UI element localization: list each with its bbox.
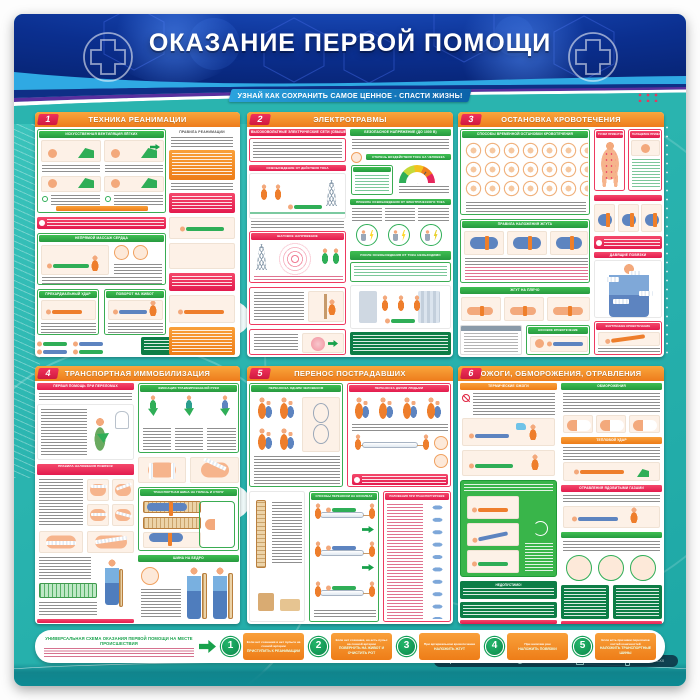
stretcher xyxy=(362,442,418,448)
torso-bandage xyxy=(87,479,109,501)
decor xyxy=(362,564,374,571)
bandaged-person-illustration xyxy=(594,260,662,318)
decor: ТОЧКИ ПРИЖАТИЯ АРТЕРИЙ xyxy=(598,133,623,136)
bandaged-limb xyxy=(563,415,593,433)
illustration xyxy=(41,140,101,162)
section-heat-stroke: ТЕПЛОВОЙ УДАР xyxy=(561,437,662,444)
arm-wash-circle xyxy=(598,555,624,581)
decor: При наличии ран xyxy=(510,642,565,646)
decor xyxy=(326,506,356,513)
ladder xyxy=(256,500,266,568)
decor xyxy=(46,541,76,545)
decor xyxy=(361,230,366,241)
text-lines xyxy=(141,589,181,619)
caption-lines xyxy=(352,424,448,432)
decor xyxy=(467,307,493,315)
panel-resuscitation: 1 ТЕХНИКА РЕАНИМАЦИИ ИСКУССТВЕННАЯ ВЕНТИ… xyxy=(35,112,240,357)
bearer xyxy=(366,581,376,599)
knee-press xyxy=(594,204,615,232)
section-arm-fixation: ФИКСАЦИЯ ТРАВМИРОВАННОЙ РУКИ xyxy=(138,383,239,453)
decor xyxy=(425,230,430,241)
arrow-right-icon xyxy=(199,640,216,653)
orange-note-box xyxy=(169,150,235,180)
decor xyxy=(353,167,391,172)
red-dots-decor xyxy=(636,92,660,102)
panel-3-header: 3 ОСТАНОВКА КРОВОТЕЧЕНИЯ xyxy=(458,112,664,127)
decor xyxy=(56,206,148,211)
decor: ПРАВИЛА НАЛОЖЕНИЯ ПОВЯЗОК xyxy=(58,464,113,468)
bandaged-limb xyxy=(629,415,660,433)
illustration xyxy=(631,140,660,156)
step-number: 5 xyxy=(573,637,592,656)
panel-title: ОСТАНОВКА КРОВОТЕЧЕНИЯ xyxy=(458,112,664,127)
text-lines xyxy=(314,610,376,619)
current-gauge xyxy=(399,165,435,183)
decor: ПРАВИЛА ОСВОБОЖДЕНИЯ ОТ ЭЛЕКТРИЧЕСКОГО Т… xyxy=(356,200,445,204)
splint-bar xyxy=(228,573,233,619)
section-tourniquet: ПРАВИЛА НАЛОЖЕНИЯ ЖГУТА xyxy=(460,219,590,283)
decor xyxy=(353,335,448,352)
heart-illustration xyxy=(302,333,344,353)
splinted-figure xyxy=(213,567,227,619)
summary-box xyxy=(350,332,451,355)
decor: ПРЕКАРДИАЛЬНЫЙ УДАР xyxy=(39,291,97,298)
text-lines xyxy=(598,348,660,354)
illustration xyxy=(467,523,519,546)
leg-tourniquet xyxy=(464,231,504,255)
decor xyxy=(633,420,657,431)
cpr-illustration xyxy=(563,506,660,528)
text-box xyxy=(249,138,346,162)
decor xyxy=(472,560,508,567)
text-lines xyxy=(114,195,163,205)
text-lines xyxy=(473,393,555,415)
arm-illustration xyxy=(504,297,544,321)
text-lines xyxy=(563,393,660,413)
bullet-list xyxy=(632,159,660,188)
decor xyxy=(369,230,374,241)
scheme-step-3: 3 При артериальном кровотеченииНАЛОЖИТЬ … xyxy=(397,633,480,660)
forbidden-box xyxy=(613,585,662,619)
decor xyxy=(425,397,443,421)
decor: СПОСОБЫ ПЕРЕНОСКИ НА НОСИЛКАХ xyxy=(316,495,373,498)
decor xyxy=(105,196,111,202)
decor xyxy=(464,484,553,492)
decor xyxy=(46,308,82,315)
bent-leg-splint xyxy=(143,532,201,548)
decor xyxy=(278,428,296,452)
splint-bar xyxy=(202,573,207,619)
section-high-voltage: ВЫСОКОВОЛЬТНЫЕ ЭЛЕКТРИЧЕСКИЕ СЕТИ (СВЫШЕ… xyxy=(249,129,346,136)
decor xyxy=(604,239,660,247)
decor: ПОСЛЕ ОСВОБОЖДЕНИЯ ОТ ТОКА НЕОБХОДИМО xyxy=(360,253,440,257)
decor xyxy=(327,299,337,315)
decor xyxy=(597,141,623,187)
text-lines xyxy=(465,258,588,265)
panel-title: ЭЛЕКТРОТРАВМЫ xyxy=(247,112,453,127)
panel-5-body: ПЕРЕНОСКА ОДНИМ ЧЕЛОВЕКОМ ПЕРЕНОСКА ДВУМ… xyxy=(247,381,453,624)
panel-number-badge: 6 xyxy=(460,368,482,379)
torso-bandage xyxy=(87,531,134,553)
decor: ЖГУТ НА ПЛЕЧО xyxy=(510,288,539,292)
decor xyxy=(605,277,619,282)
decor xyxy=(73,348,103,355)
decor xyxy=(141,148,157,158)
decor xyxy=(354,266,447,278)
illustration xyxy=(169,295,235,323)
warning-bar xyxy=(352,474,448,485)
forbidden-box: НЕДОПУСТИМО! xyxy=(460,581,557,599)
decor xyxy=(385,317,415,324)
alert-icon xyxy=(596,240,602,246)
decor xyxy=(143,517,201,529)
section-pressure-bandage: ДАВЯЩИЕ ПОВЯЗКИ xyxy=(594,252,662,258)
section-two-person-carry: ПЕРЕНОСКА ДВУМЯ ЛЮДЬМИ xyxy=(347,383,451,487)
section-ventilation: ИСКУССТВЕННАЯ ВЕНТИЛЯЦИЯ ЛЁГКИХ xyxy=(37,129,166,213)
timing-table xyxy=(460,325,522,355)
decor xyxy=(377,397,395,421)
text-lines xyxy=(254,292,304,322)
decor: ПЕРЕНОСКА ДВУМЯ ЛЮДЬМИ xyxy=(375,386,424,390)
checklist xyxy=(350,262,451,282)
recovery-position-figures xyxy=(37,339,137,356)
decor xyxy=(645,214,659,226)
decor: НЕПРЯМОЙ МАССАЖ СЕРДЦА xyxy=(39,235,164,242)
text-lines xyxy=(51,195,100,205)
figures xyxy=(319,248,341,270)
decor: ТРАНСПОРТНАЯ ШИНА НА ГОЛЕНЬ И СТОПУ xyxy=(140,489,237,496)
detail-inset xyxy=(434,436,448,450)
decor: ВЫСОКОВОЛЬТНЫЕ ЭЛЕКТРИЧЕСКИЕ СЕТИ (СВЫШЕ… xyxy=(251,130,346,134)
foot-bandage-inset xyxy=(199,501,235,548)
decor xyxy=(313,424,329,444)
text-lines xyxy=(41,409,87,455)
decor: НЕДОПУСТИМО! xyxy=(460,583,557,587)
heart-check-box xyxy=(249,329,346,355)
decor xyxy=(172,153,232,177)
prohibition-icon xyxy=(462,394,470,402)
decor: НЕПРЯМОЙ МАССАЖ СЕРДЦА xyxy=(75,236,128,240)
decor: ШИНА НА БЕДРО xyxy=(173,556,204,560)
decor xyxy=(205,519,229,530)
decor xyxy=(564,588,606,616)
decor xyxy=(629,507,639,523)
bearer xyxy=(312,541,322,559)
arm-wash-circle xyxy=(630,555,656,581)
decor xyxy=(513,237,541,249)
decor: При наличии ранНАЛОЖИТЬ ПОВЯЗКИ xyxy=(507,633,568,660)
section-safe-voltage: БЕЗОПАСНОЕ НАПРЯЖЕНИЕ (ДО 1000 В) xyxy=(350,129,451,136)
panel-number-badge: 5 xyxy=(249,368,271,379)
section-burns: ТЕРМИЧЕСКИЕ ОЖОГИ xyxy=(460,383,557,390)
text-lines xyxy=(254,334,298,352)
decor xyxy=(148,300,158,316)
decor xyxy=(639,291,653,296)
improvised-stretcher-box xyxy=(249,491,305,622)
decor xyxy=(115,411,129,429)
decor xyxy=(401,230,406,241)
decor xyxy=(42,196,48,202)
scheme-step-2: 2 Если нет сознания, но есть пульс на со… xyxy=(309,633,392,660)
scheme-step-5: 5 Если есть признаки переломов костей ко… xyxy=(573,633,656,660)
section-internal-bleeding: ВНУТРЕННЕЕ КРОВОТЕЧЕНИЕ xyxy=(594,321,662,355)
decor xyxy=(464,333,518,353)
text-lines xyxy=(42,277,162,284)
decor: При артериальном кровотечении xyxy=(422,642,477,646)
decor xyxy=(47,262,89,269)
decor xyxy=(472,506,508,513)
panel-1-header: 1 ТЕХНИКА РЕАНИМАЦИИ xyxy=(35,112,240,127)
first-aid-poster: ОКАЗАНИЕ ПЕРВОЙ ПОМОЩИ УЗНАЙ КАК СОХРАНИ… xyxy=(14,14,686,686)
arm-wash-circle xyxy=(566,555,592,581)
decor xyxy=(359,291,377,323)
forbidden-box xyxy=(561,585,609,619)
decor: ПРЕКАРДИАЛЬНЫЙ УДАР xyxy=(45,292,91,296)
section-leg-splint: ТРАНСПОРТНАЯ ШИНА НА ГОЛЕНЬ И СТОПУ xyxy=(138,487,239,551)
electricians-illustration xyxy=(350,285,451,329)
decor xyxy=(91,485,107,488)
decor: ПЕРЕНОСКА ДВУМЯ ЛЮДЬМИ xyxy=(349,385,449,392)
red-note-box xyxy=(169,193,235,213)
section-poisoning: ОТРАВЛЕНИЯ ЯДОВИТЫМИ ГАЗАМИ xyxy=(561,485,662,492)
decor: Если есть признаки переломов костей коне… xyxy=(595,633,656,660)
decor xyxy=(328,340,338,347)
cpr-illustration xyxy=(41,245,109,275)
decor xyxy=(147,503,187,511)
decor xyxy=(362,476,446,484)
decor: ПРАВИЛА НАЛОЖЕНИЯ ЖГУТА xyxy=(498,222,552,226)
decor xyxy=(73,340,103,347)
decor xyxy=(629,271,641,275)
decor xyxy=(528,424,538,440)
illustration xyxy=(467,496,519,519)
panel-2-body: ВЫСОКОВОЛЬТНЫЕ ЭЛЕКТРИЧЕСКИЕ СЕТИ (СВЫШЕ… xyxy=(247,127,453,357)
text-lines xyxy=(39,479,83,527)
text-lines xyxy=(114,264,162,275)
chair xyxy=(258,593,274,611)
torso-bandage xyxy=(112,479,134,501)
scheme-step-1: 1 Если нет сознания и нет пульса на сонн… xyxy=(221,633,304,660)
panel-immobilization: 4 ТРАНСПОРТНАЯ ИММОБИЛИЗАЦИЯ ПЕРВАЯ ПОМО… xyxy=(35,366,240,624)
subtitle-ribbon: УЗНАЙ КАК СОХРАНИТЬ САМОЕ ЦЕННОЕ - СПАСТ… xyxy=(228,89,471,102)
caption-lines xyxy=(254,456,340,484)
decor: ТЕРМИЧЕСКИЕ ОЖОГИ xyxy=(488,384,529,388)
panel-title: ТЕХНИКА РЕАНИМАЦИИ xyxy=(35,112,240,127)
panel-6-body: ТЕРМИЧЕСКИЕ ОЖОГИ НЕДОПУСТИМО! xyxy=(458,381,664,624)
decor xyxy=(311,337,325,351)
panel-3-body: СПОСОБЫ ВРЕМЕННОЙ ОСТАНОВКИ КРОВОТЕЧЕНИЯ… xyxy=(458,127,664,357)
illustration xyxy=(104,176,164,192)
decor xyxy=(78,178,94,188)
red-bar xyxy=(460,620,557,624)
section-temporary-stop: СПОСОБЫ ВРЕМЕННОЙ ОСТАНОВКИ КРОВОТЕЧЕНИЯ xyxy=(460,129,590,215)
panel-burns-frostbite-poisoning: 6 ОЖОГИ, ОБМОРОЖЕНИЯ, ОТРАВЛЕНИЯ ТЕРМИЧЕ… xyxy=(458,366,664,624)
decor xyxy=(149,463,153,479)
section-bandage-rules: ПРАВИЛА НАЛОЖЕНИЯ ПОВЯЗОК xyxy=(37,464,134,475)
panel-title: ТРАНСПОРТНАЯ ИММОБИЛИЗАЦИЯ xyxy=(35,366,240,381)
torso-bandage xyxy=(112,504,134,526)
knee-press xyxy=(641,204,662,232)
decor: ИСКУССТВЕННАЯ ВЕНТИЛЯЦИЯ ЛЁГКИХ xyxy=(39,131,164,138)
step-number: 3 xyxy=(397,637,416,656)
decor xyxy=(535,339,544,348)
decor xyxy=(613,299,629,304)
decor xyxy=(111,179,120,188)
torso-bandage xyxy=(87,504,109,526)
text-lines xyxy=(418,208,449,221)
decor xyxy=(353,397,371,421)
decor: Если нет сознания, но есть пульс на сонн… xyxy=(334,638,389,646)
warning-bar xyxy=(594,236,662,249)
illustration xyxy=(467,550,519,573)
decor xyxy=(149,533,183,542)
decor xyxy=(141,178,157,188)
scheme-step-4: 4 При наличии ранНАЛОЖИТЬ ПОВЯЗКИ xyxy=(485,633,568,660)
decor: ПЕРЕНОСКА ОДНИМ ЧЕЛОВЕКОМ xyxy=(269,386,324,390)
decor: ПОЛОЖЕНИЯ ПРИ ТРАНСПОРТИРОВКЕ xyxy=(385,493,449,500)
scheme-intro: УНИВЕРСАЛЬНАЯ СХЕМА ОКАЗАНИЯ ПЕРВОЙ ПОМО… xyxy=(44,636,194,657)
universal-scheme-bar: УНИВЕРСАЛЬНАЯ СХЕМА ОКАЗАНИЯ ПЕРВОЙ ПОМО… xyxy=(35,630,665,663)
decor xyxy=(641,144,650,153)
bandaged-limb xyxy=(596,415,626,433)
panel-number-badge: 2 xyxy=(249,114,271,125)
panel-number-badge: 1 xyxy=(37,114,59,125)
decor xyxy=(622,214,636,226)
panel-4-body: ПЕРВАЯ ПОМОЩЬ ПРИ ПЕРЕЛОМАХ ПРАВИЛА НАЛО… xyxy=(35,381,240,624)
illustration xyxy=(41,176,101,192)
decor xyxy=(616,588,659,616)
ladder-splint xyxy=(39,583,97,598)
decor xyxy=(313,403,329,423)
bearer xyxy=(312,503,322,521)
decor xyxy=(393,230,398,241)
decor: Если нет сознания, но есть пульс на сонн… xyxy=(331,633,392,660)
decor xyxy=(48,149,57,158)
water-vessel xyxy=(516,423,526,430)
decor xyxy=(362,526,374,533)
decor xyxy=(37,340,67,347)
text-lines xyxy=(466,202,586,212)
decor xyxy=(530,454,540,470)
decor xyxy=(172,276,232,288)
rotate-arrow-icon xyxy=(533,521,548,536)
decor: ФИКСАЦИЯ ТРАВМИРОВАННОЙ РУКИ xyxy=(140,385,237,392)
text-lines xyxy=(171,137,233,148)
section-transport-positions: ПОЛОЖЕНИЯ ПРИ ТРАНСПОРТИРОВКЕ xyxy=(383,491,451,622)
decor xyxy=(463,605,554,615)
decor: НАЛОЖИТЬ ПОВЯЗКИ xyxy=(510,647,565,651)
splint-bar xyxy=(119,569,123,607)
decor xyxy=(556,237,582,249)
detail-inset xyxy=(141,567,159,585)
text-lines xyxy=(525,543,553,571)
decor xyxy=(172,196,232,210)
panel-bleeding-control: 3 ОСТАНОВКА КРОВОТЕЧЕНИЯ СПОСОБЫ ВРЕМЕНН… xyxy=(458,112,664,357)
decor xyxy=(417,172,427,184)
stretcher-position-diagrams xyxy=(426,504,449,619)
cooling-illustration xyxy=(462,418,555,446)
red-note-box xyxy=(169,273,235,291)
decor: Если есть признаки переломов костей коне… xyxy=(598,638,653,646)
decor: СПОСОБЫ ВРЕМЕННОЙ ОСТАНОВКИ КРОВОТЕЧЕНИЯ xyxy=(462,131,588,138)
decor: СПОСОБЫ ПЕРЕНОСКИ НА НОСИЛКАХ xyxy=(311,493,377,500)
panel-6-header: 6 ОЖОГИ, ОБМОРОЖЕНИЯ, ОТРАВЛЕНИЯ xyxy=(458,366,664,381)
section-release: ОСВОБОЖДЕНИЕ ОТ ДЕЙСТВИЯ ТОКА xyxy=(249,165,346,171)
illustration xyxy=(308,291,344,322)
decor xyxy=(553,307,583,315)
text-lines xyxy=(171,183,233,191)
decor: ПОВОРОТ НА ЖИВОТ xyxy=(106,291,164,298)
gauge-legend xyxy=(399,186,449,195)
decor: ПЕРВАЯ ПОМОЩЬ ПРИ ПЕРЕЛОМАХ xyxy=(53,384,118,388)
section-arm-tourniquet: ЖГУТ НА ПЛЕЧО xyxy=(460,287,590,294)
text-lines xyxy=(563,541,660,552)
bearer xyxy=(420,434,432,456)
text-lines xyxy=(272,502,302,564)
hazard-circle xyxy=(420,224,442,246)
section-finger-pressure: ПАЛЬЦЕВОЕ ПРИЖАТИЕ АРТЕРИЙ xyxy=(628,129,662,191)
decor xyxy=(111,149,120,158)
decor: НАЛОЖИТЬ ЖГУТ xyxy=(422,647,477,651)
text-lines xyxy=(39,393,132,402)
decor: ТРАНСПОРТНАЯ ШИНА НА ГОЛЕНЬ И СТОПУ xyxy=(153,490,223,494)
step-number: 2 xyxy=(309,637,328,656)
text-lines xyxy=(563,447,660,460)
panel-electrical-injuries: 2 ЭЛЕКТРОТРАВМЫ ВЫСОКОВОЛЬТНЫЕ ЭЛЕКТРИЧЕ… xyxy=(247,112,453,357)
round-icon xyxy=(351,152,362,163)
panel-4-header: 4 ТРАНСПОРТНАЯ ИММОБИЛИЗАЦИЯ xyxy=(35,366,240,381)
decor xyxy=(598,214,612,226)
hazard-circle xyxy=(388,224,410,246)
decor: СПОСОБЫ ВРЕМЕННОЙ ОСТАНОВКИ КРОВОТЕЧЕНИЯ xyxy=(477,132,573,136)
decor xyxy=(469,432,509,439)
splinted-figure xyxy=(187,567,201,619)
illustration xyxy=(104,140,164,162)
decor xyxy=(48,179,57,188)
decor: ШАГОВОЕ НАПРЯЖЕНИЕ xyxy=(277,234,318,238)
turn-prone-green-box xyxy=(460,480,557,577)
decor: НОСОВОЕ КРОВОТЕЧЕНИЕ xyxy=(538,329,578,332)
decor: ДАВЯЩИЕ ПОВЯЗКИ xyxy=(610,253,647,257)
detail-inset xyxy=(133,245,148,260)
decor xyxy=(637,469,649,477)
text-lines xyxy=(563,495,660,504)
sling-illustration xyxy=(37,404,134,460)
section-hip-splint: ШИНА НА БЕДРО xyxy=(138,555,239,562)
decor xyxy=(567,420,591,431)
decor xyxy=(326,584,356,591)
step-voltage-zones xyxy=(278,242,312,276)
panel-carrying-victims: 5 ПЕРЕНОС ПОСТРАДАВШИХ ПЕРЕНОСКА ОДНИМ Ч… xyxy=(247,366,453,624)
splinted-figure xyxy=(105,559,119,605)
text-lines xyxy=(352,208,382,221)
decor xyxy=(433,230,438,241)
arm-illustration xyxy=(461,297,501,321)
decor xyxy=(470,237,498,249)
panel-number-badge: 3 xyxy=(460,114,482,125)
poster-subtitle: УЗНАЙ КАК СОХРАНИТЬ САМОЕ ЦЕННОЕ - СПАСТ… xyxy=(230,89,470,102)
decor xyxy=(605,332,646,344)
decor xyxy=(510,307,536,315)
decor xyxy=(469,462,513,469)
decor xyxy=(600,420,624,431)
section-fractures: ПЕРВАЯ ПОМОЩЬ ПРИ ПЕРЕЛОМАХ xyxy=(37,383,134,390)
knee-press xyxy=(618,204,639,232)
section-frostbite: ОБМОРОЖЕНИЯ xyxy=(561,383,662,390)
panel-1-body: ИСКУССТВЕННАЯ ВЕНТИЛЯЦИЯ ЛЁГКИХ НЕПРЯМОЙ… xyxy=(35,127,240,357)
text-lines xyxy=(251,221,344,229)
decor: Если нет сознания и нет пульса на сонной… xyxy=(246,640,301,648)
